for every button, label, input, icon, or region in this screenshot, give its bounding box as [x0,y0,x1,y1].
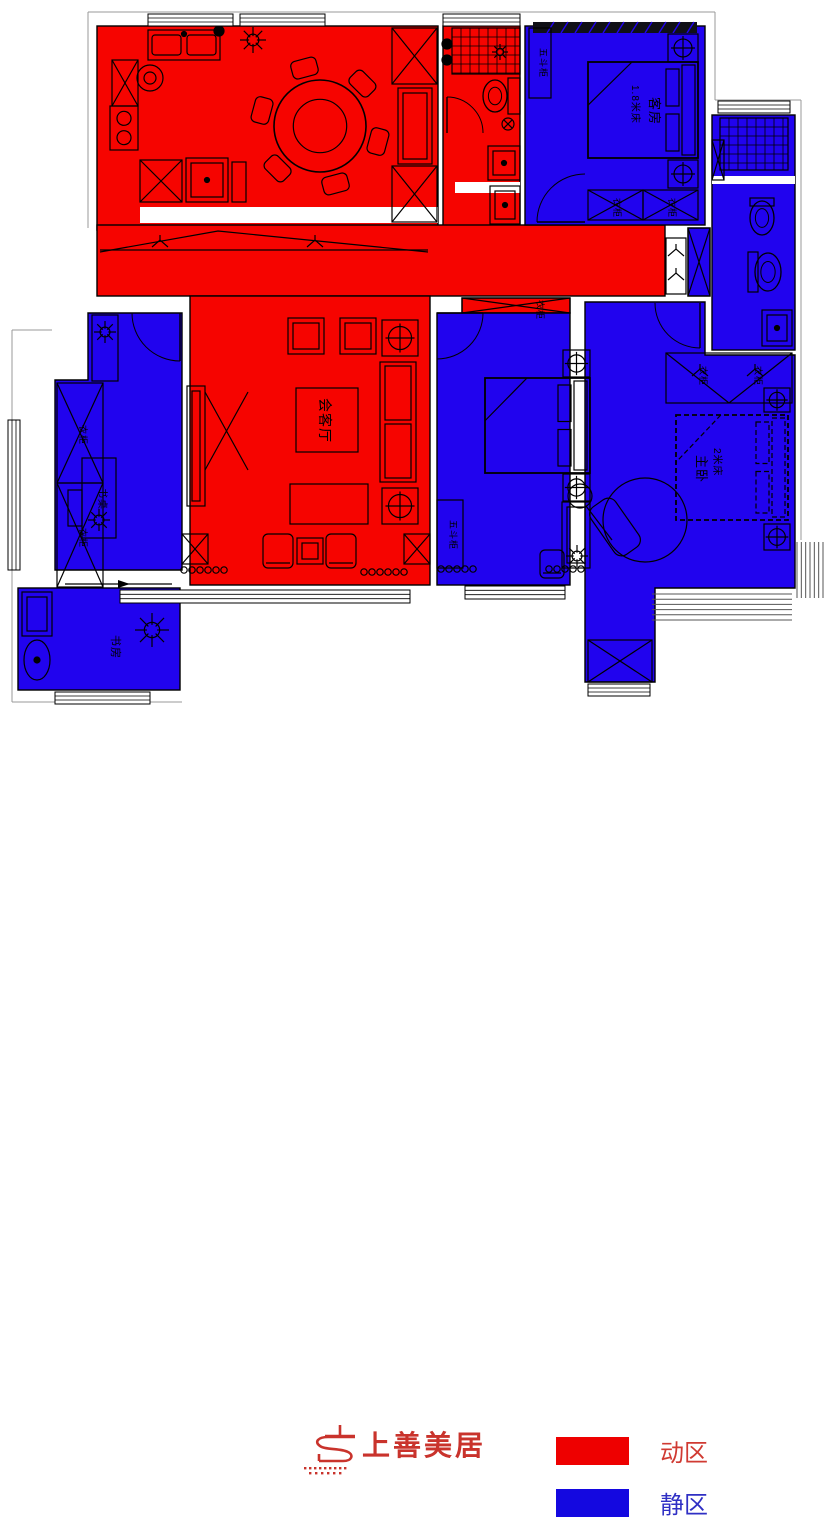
room-label: 书桌 [96,488,109,510]
room-label: 衣柜 [78,528,89,548]
room-label: 1.8米床 [629,85,642,124]
corridor [97,225,665,296]
legend-row-quiet: 静区 [556,1488,708,1517]
oven [205,178,210,183]
window [443,14,520,26]
room-label: 衣柜 [698,366,709,386]
quiet-zone-swatch [556,1489,629,1517]
footer: 上善美居 动区 静区 [0,700,828,824]
circle [442,39,452,49]
laundry-sink [503,203,508,208]
window [8,420,20,570]
active-zone-swatch [556,1437,629,1465]
room-label: 五斗柜 [538,48,549,78]
room-label: 衣柜 [612,198,623,218]
circle [214,26,224,36]
room-label: 衣柜 [667,198,678,218]
room-label: 衣柜 [78,425,89,445]
window [148,14,233,26]
brand-logo-icon [301,1408,359,1478]
window [718,101,790,113]
living-room [190,296,430,585]
room-label: 书房 [109,635,122,659]
zone-legend: 动区 静区 [556,1436,708,1540]
room-label: 会客厅 [317,398,333,443]
floor-plan: 会客厅1.8米床客房五斗柜衣柜衣柜衣柜主卧2米床衣柜衣柜书桌衣柜衣柜书房五斗柜 [0,0,828,710]
window [240,14,325,26]
master-bedroom [585,302,795,682]
window [465,586,565,599]
blind [533,22,697,33]
washer [502,161,507,166]
brand-name: 上善美居 [362,1424,486,1464]
room-label: 2米床 [711,448,724,477]
legend-row-active: 动区 [556,1436,708,1465]
kitchen-sink [182,32,187,37]
poly [118,580,130,588]
radiator [578,566,584,572]
circle [442,55,452,65]
room-label: 衣柜 [535,300,546,320]
room-label: 主卧 [694,455,709,483]
room-label: 衣柜 [753,366,764,386]
window [588,684,650,696]
basin [775,326,780,331]
room-label: 五斗柜 [448,520,459,550]
circle [34,657,40,663]
room-label: 客房 [647,97,662,125]
window [120,590,410,603]
active-zone-label: 动区 [660,1433,708,1468]
radiator [570,566,576,572]
bathroom-red [443,26,520,230]
quiet-zone-label: 静区 [660,1485,708,1520]
fan [579,548,584,553]
